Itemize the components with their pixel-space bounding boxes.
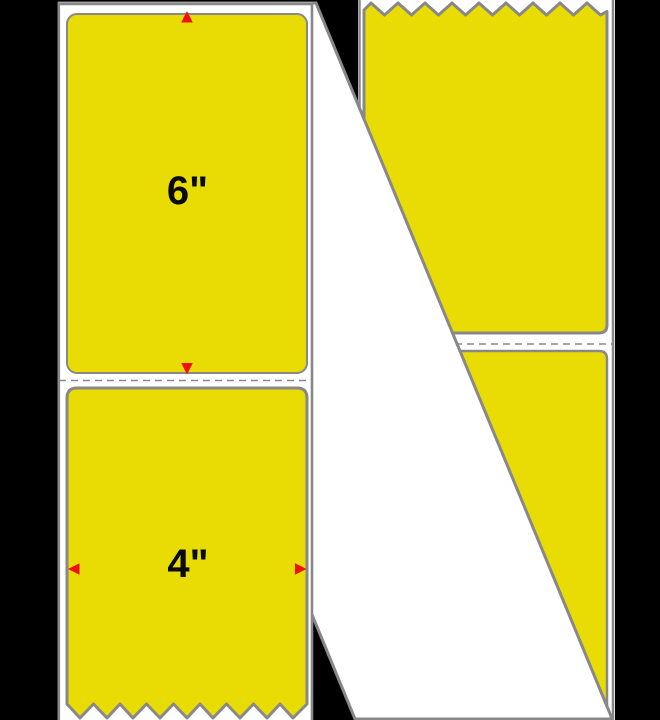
label-height-dimension-text: 6" xyxy=(167,169,208,213)
label-product-illustration: 6" 4" xyxy=(0,0,660,720)
labels-dimension-diagram: 6" 4" xyxy=(0,0,660,720)
label-width-dimension-text: 4" xyxy=(167,542,208,586)
left-label-strip xyxy=(58,3,314,720)
